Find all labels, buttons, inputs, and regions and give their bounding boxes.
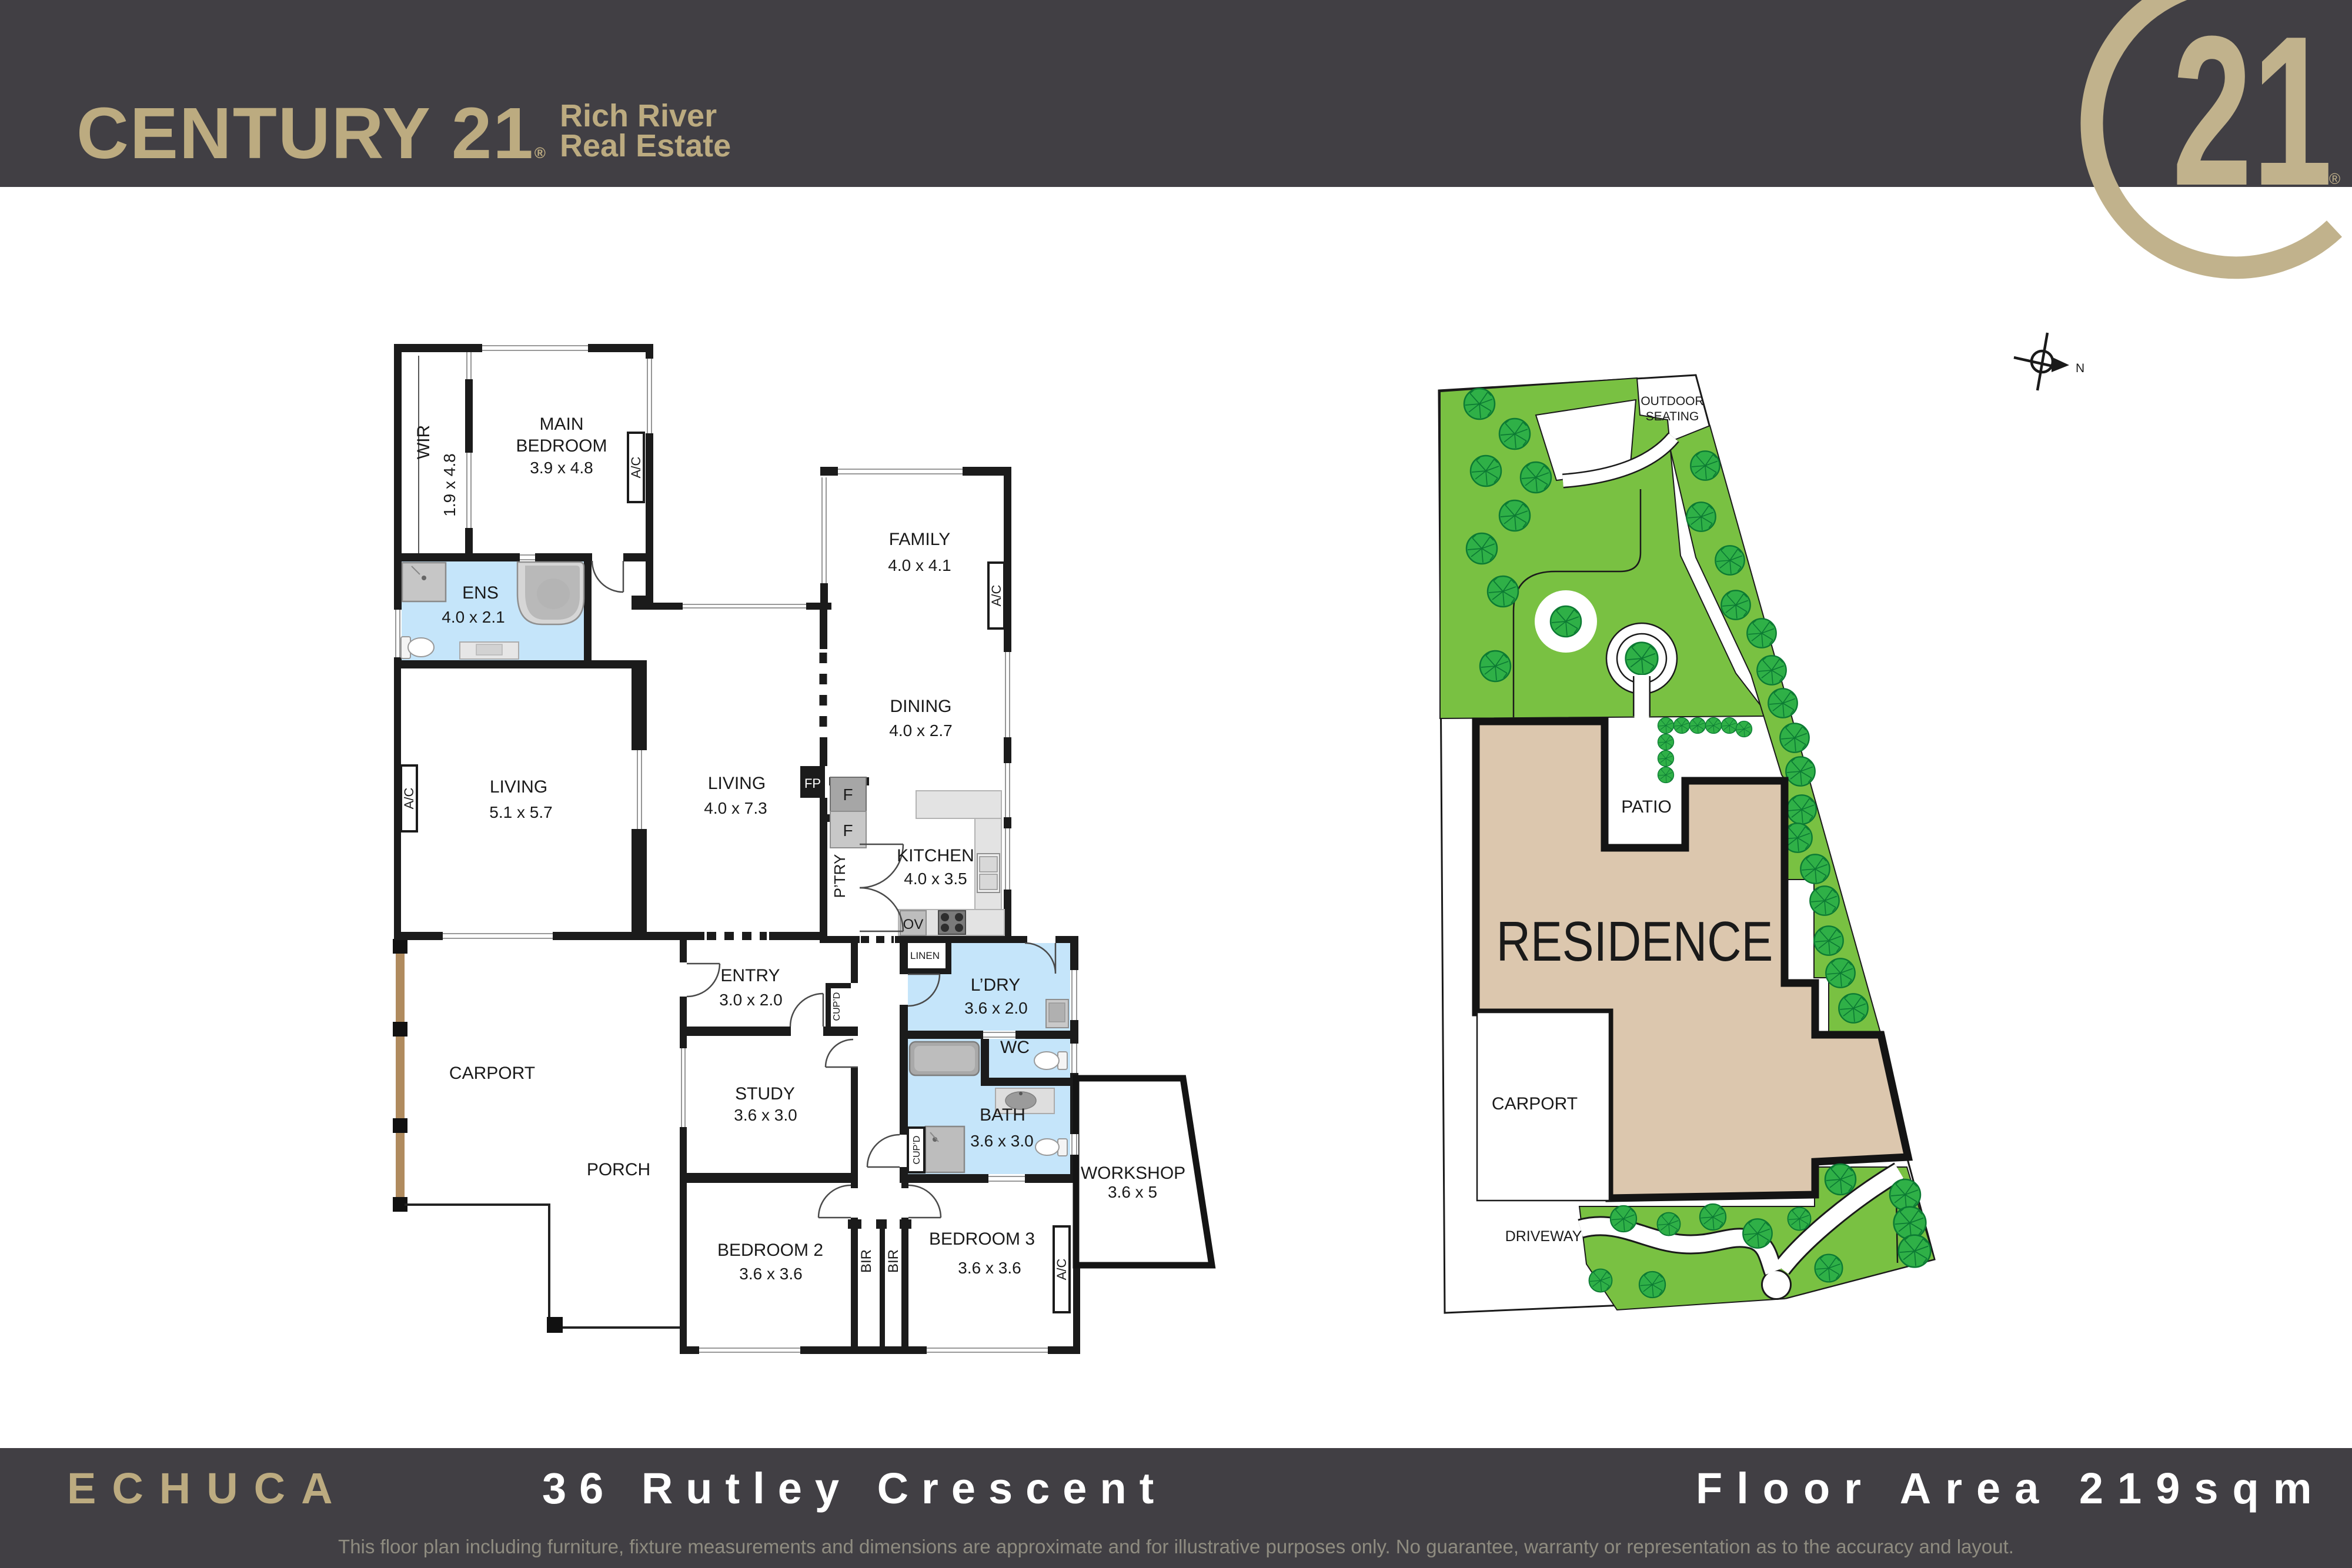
svg-text:SEATING: SEATING [1646, 410, 1699, 423]
svg-text:BIR: BIR [886, 1249, 901, 1273]
svg-text:4.0 x 2.1: 4.0 x 2.1 [442, 608, 505, 626]
svg-text:3.9 x 4.8: 3.9 x 4.8 [530, 459, 593, 477]
svg-text:LIVING: LIVING [708, 774, 766, 793]
svg-text:A/C: A/C [629, 457, 643, 479]
svg-text:3.6 x 5: 3.6 x 5 [1108, 1183, 1157, 1201]
svg-text:CUP’D: CUP’D [912, 1136, 922, 1165]
svg-text:ENS: ENS [462, 583, 499, 603]
svg-text:WORKSHOP: WORKSHOP [1081, 1164, 1185, 1183]
svg-text:PORCH: PORCH [587, 1160, 650, 1179]
svg-text:BEDROOM 3: BEDROOM 3 [929, 1229, 1035, 1249]
svg-text:OV: OV [903, 917, 924, 932]
svg-text:4.0 x 2.7: 4.0 x 2.7 [889, 721, 952, 740]
svg-text:21: 21 [2172, 0, 2333, 230]
svg-text:®: ® [2329, 170, 2340, 188]
svg-text:1.9 x 4.8: 1.9 x 4.8 [440, 453, 459, 516]
svg-text:WC: WC [1000, 1038, 1030, 1057]
svg-text:KITCHEN: KITCHEN [897, 846, 974, 865]
svg-text:F: F [843, 785, 853, 804]
svg-text:P’TRY: P’TRY [831, 854, 848, 898]
svg-text:RESIDENCE: RESIDENCE [1496, 910, 1773, 972]
svg-text:BIR: BIR [858, 1249, 874, 1273]
svg-text:DINING: DINING [890, 697, 952, 716]
svg-text:LIVING: LIVING [490, 777, 547, 797]
svg-text:FAMILY: FAMILY [889, 530, 950, 549]
svg-text:3.6 x 3.0: 3.6 x 3.0 [734, 1106, 797, 1124]
svg-text:L’DRY: L’DRY [971, 975, 1021, 995]
svg-text:4.0 x 7.3: 4.0 x 7.3 [704, 799, 767, 817]
svg-text:WIR: WIR [414, 425, 433, 459]
svg-text:MAIN: MAIN [540, 414, 584, 434]
svg-text:DRIVEWAY: DRIVEWAY [1505, 1228, 1582, 1245]
svg-text:3.6 x 3.6: 3.6 x 3.6 [958, 1259, 1021, 1277]
svg-text:CARPORT: CARPORT [449, 1064, 535, 1083]
svg-text:4.0 x 3.5: 4.0 x 3.5 [904, 870, 967, 888]
svg-text:A/C: A/C [402, 788, 416, 810]
svg-text:N: N [2076, 362, 2084, 375]
svg-text:LINEN: LINEN [910, 950, 940, 961]
svg-text:F: F [843, 821, 853, 840]
svg-text:ENTRY: ENTRY [720, 966, 780, 985]
svg-text:A/C: A/C [1054, 1259, 1069, 1281]
svg-text:CUP’D: CUP’D [832, 992, 842, 1021]
svg-text:OUTDOOR: OUTDOOR [1641, 394, 1703, 408]
svg-text:3.6 x 2.0: 3.6 x 2.0 [964, 999, 1027, 1017]
svg-text:CARPORT: CARPORT [1492, 1094, 1578, 1114]
svg-text:BEDROOM: BEDROOM [516, 436, 607, 456]
svg-text:PATIO: PATIO [1621, 797, 1672, 817]
svg-text:FP: FP [804, 776, 821, 791]
svg-text:4.0 x 4.1: 4.0 x 4.1 [888, 556, 951, 574]
svg-text:A/C: A/C [989, 585, 1004, 607]
svg-text:BATH: BATH [980, 1105, 1025, 1125]
svg-text:3.6 x 3.6: 3.6 x 3.6 [739, 1265, 802, 1283]
svg-text:3.0 x 2.0: 3.0 x 2.0 [719, 991, 782, 1009]
svg-text:5.1 x 5.7: 5.1 x 5.7 [489, 803, 552, 821]
svg-text:STUDY: STUDY [735, 1084, 795, 1104]
svg-text:3.6 x 3.0: 3.6 x 3.0 [970, 1132, 1033, 1150]
svg-text:BEDROOM 2: BEDROOM 2 [717, 1241, 823, 1260]
